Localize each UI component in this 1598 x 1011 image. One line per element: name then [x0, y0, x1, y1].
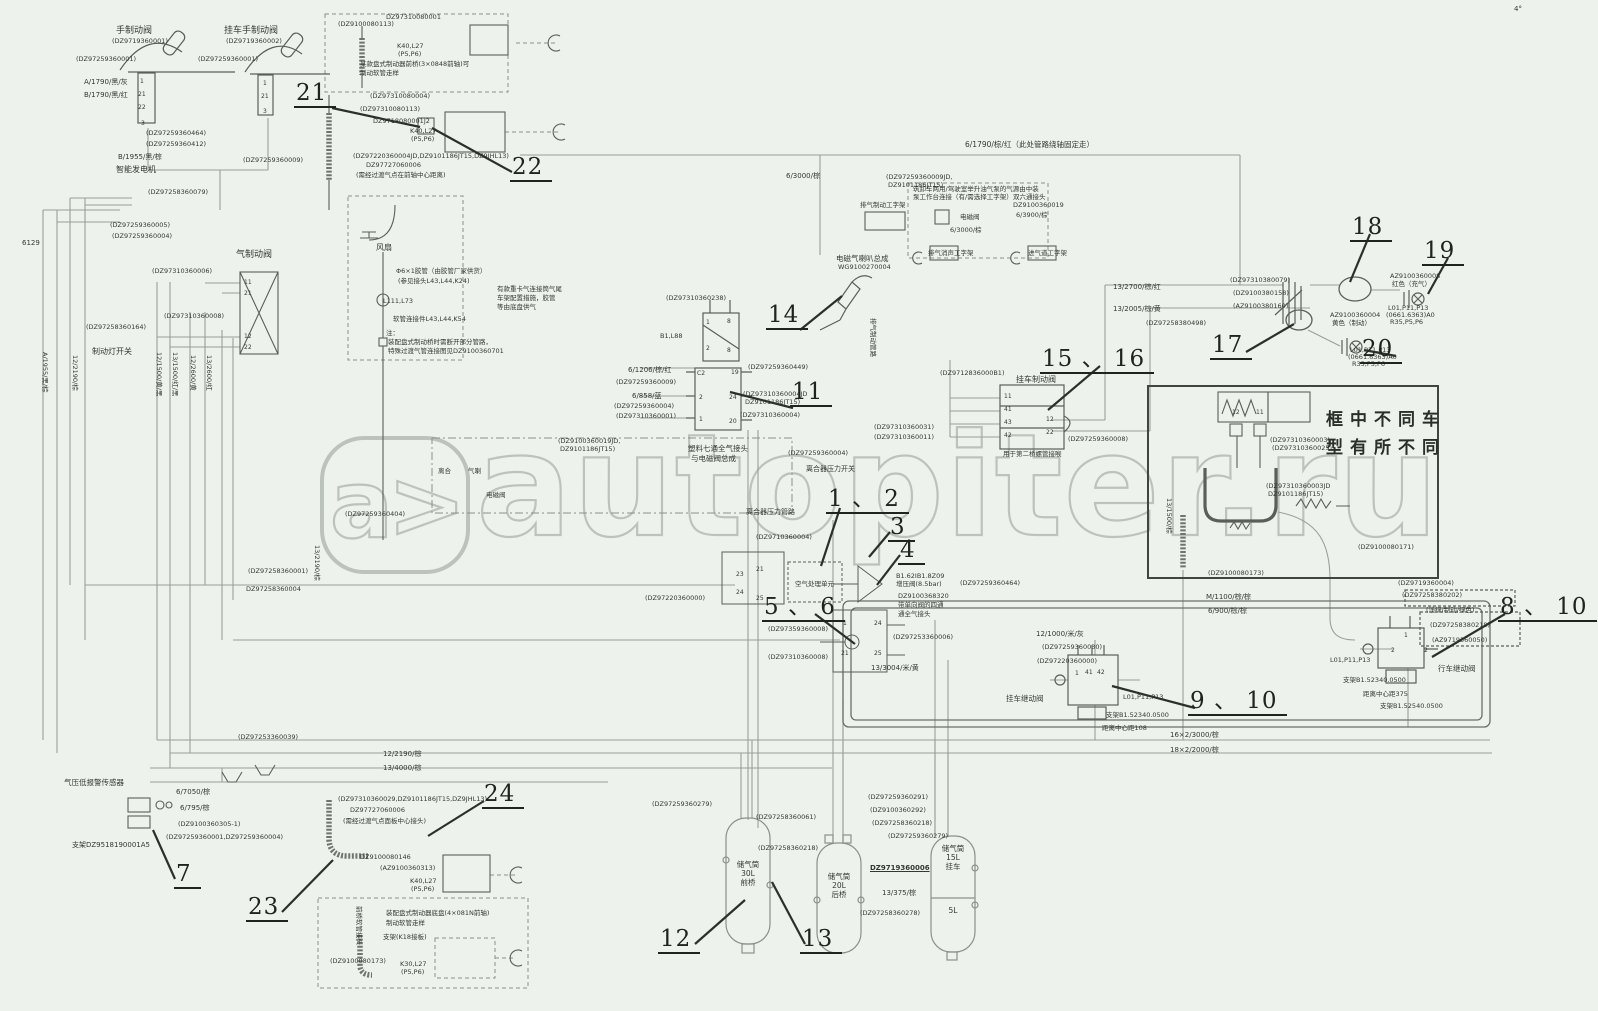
fan-symbol	[360, 205, 395, 540]
schematic-canvas	[0, 0, 1598, 1011]
manifold-7way	[686, 300, 752, 430]
relay-valve-trailer	[1055, 645, 1118, 719]
dash-dot-box	[432, 438, 792, 513]
hose-thin-ends	[329, 26, 362, 210]
double-frame	[843, 601, 1490, 727]
air-processing-unit	[722, 552, 905, 672]
hand-brake-valves	[120, 29, 330, 123]
air-tanks	[723, 818, 978, 960]
braided-hoses	[329, 38, 1183, 975]
coupling-head-19	[1404, 290, 1424, 308]
spring-brake-internals	[1205, 392, 1350, 529]
pneumatic-brake-schematic-page: a> autopiter.ru	[0, 0, 1598, 1011]
fittings-and-clips	[128, 25, 1056, 966]
callout-leaders	[153, 108, 1505, 944]
coupling-head-20	[1342, 338, 1362, 356]
air-brake-valve	[240, 272, 278, 354]
relay-valve-service	[1363, 590, 1520, 683]
trailer-brake-valve	[1000, 385, 1070, 449]
variant-note-box	[1148, 386, 1438, 578]
dashed-boxes	[318, 14, 1048, 988]
coiled-hose-18	[1339, 277, 1371, 301]
horn-symbol	[820, 276, 872, 330]
